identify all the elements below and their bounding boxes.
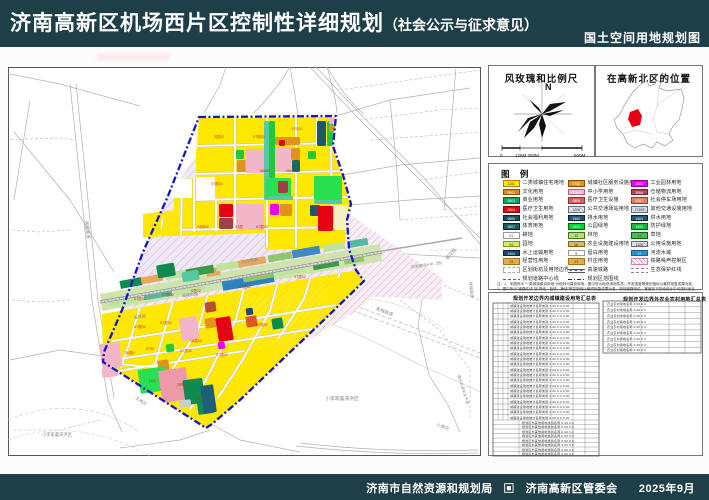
- svg-text:67居02: 67居02: [256, 322, 268, 327]
- svg-text:14G2: 14G2: [195, 397, 204, 401]
- svg-text:125M 250M: 125M 250M: [515, 153, 539, 158]
- svg-text:N: N: [545, 82, 552, 92]
- svg-text:俊花路: 俊花路: [444, 246, 459, 261]
- svg-text:07居02: 07居02: [211, 181, 223, 186]
- svg-text:67居02: 67居02: [134, 324, 146, 329]
- svg-text:青银高速: 青银高速: [83, 220, 93, 239]
- svg-text:07G02: 07G02: [292, 127, 303, 131]
- svg-text:30居0: 30居0: [125, 350, 135, 355]
- svg-text:0: 0: [500, 153, 503, 158]
- svg-text:500M: 500M: [574, 153, 586, 158]
- svg-text:07居02: 07居02: [239, 284, 251, 289]
- svg-text:07居02: 07居02: [160, 320, 172, 325]
- svg-text:07居02: 07居02: [294, 274, 306, 279]
- svg-text:67居02: 67居02: [256, 224, 268, 229]
- svg-text:2居02: 2居02: [214, 134, 224, 139]
- svg-text:07居02: 07居02: [162, 292, 174, 297]
- svg-text:小李家蓄滞洪区: 小李家蓄滞洪区: [42, 431, 73, 438]
- svg-text:08A03: 08A03: [260, 169, 270, 173]
- svg-text:0702: 0702: [146, 347, 154, 351]
- svg-text:小清河: 小清河: [435, 421, 450, 433]
- svg-text:07居02: 07居02: [216, 352, 228, 357]
- svg-text:青银高速: 青银高速: [375, 305, 395, 318]
- svg-text:14G: 14G: [149, 379, 156, 383]
- svg-text:08居03: 08居03: [190, 338, 202, 343]
- svg-text:小李家蓄滞洪区: 小李家蓄滞洪区: [325, 395, 359, 402]
- svg-text:1研: 1研: [328, 227, 334, 231]
- svg-text:07居02: 07居02: [134, 296, 146, 301]
- svg-text:南水北调东水干渠: 南水北调东水干渠: [456, 374, 470, 405]
- svg-text:07居02: 07居02: [253, 134, 265, 139]
- svg-text:玉清河: 玉清河: [134, 394, 149, 408]
- svg-text:07居02: 07居02: [180, 348, 192, 353]
- svg-text:08A03: 08A03: [286, 169, 296, 173]
- svg-text:07居02: 07居02: [220, 328, 232, 333]
- svg-text:04居02: 04居02: [197, 224, 209, 229]
- svg-text:2研0: 2研0: [177, 383, 185, 387]
- svg-text:07居: 07居: [235, 224, 243, 229]
